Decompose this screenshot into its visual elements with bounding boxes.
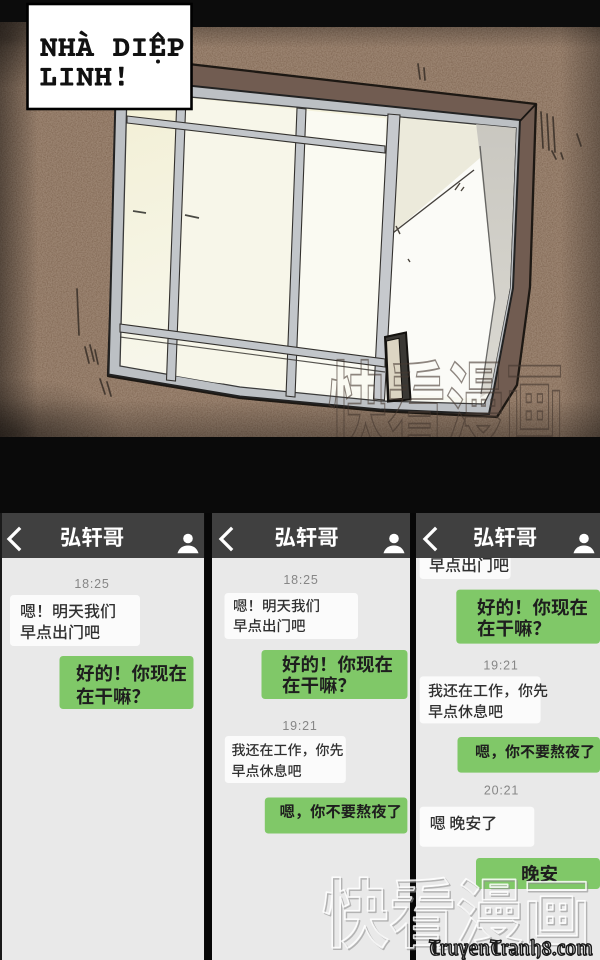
svg-text:19:21: 19:21 (483, 659, 518, 673)
svg-text:18:25: 18:25 (283, 573, 318, 587)
svg-text:20:21: 20:21 (484, 784, 519, 798)
svg-text:18:25: 18:25 (74, 577, 109, 591)
svg-text:19:21: 19:21 (282, 719, 317, 733)
